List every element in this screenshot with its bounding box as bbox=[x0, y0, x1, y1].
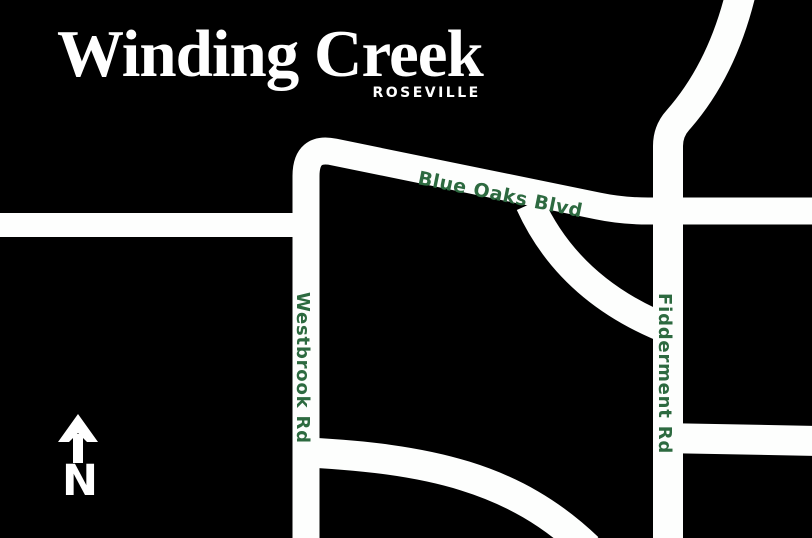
road-label-fidderment-rd: Fidderment Rd bbox=[654, 293, 675, 454]
map-title: Winding Creek bbox=[57, 18, 483, 92]
winding-creek-map: Blue Oaks Blvd Westbrook Rd Fidderment R… bbox=[0, 0, 812, 538]
road-southeast-street bbox=[660, 438, 812, 441]
compass: N bbox=[50, 408, 110, 513]
title-block: Winding Creek ROSEVILLE bbox=[57, 18, 483, 101]
compass-north-label: N bbox=[50, 460, 110, 503]
road-label-westbrook-rd: Westbrook Rd bbox=[292, 292, 313, 444]
